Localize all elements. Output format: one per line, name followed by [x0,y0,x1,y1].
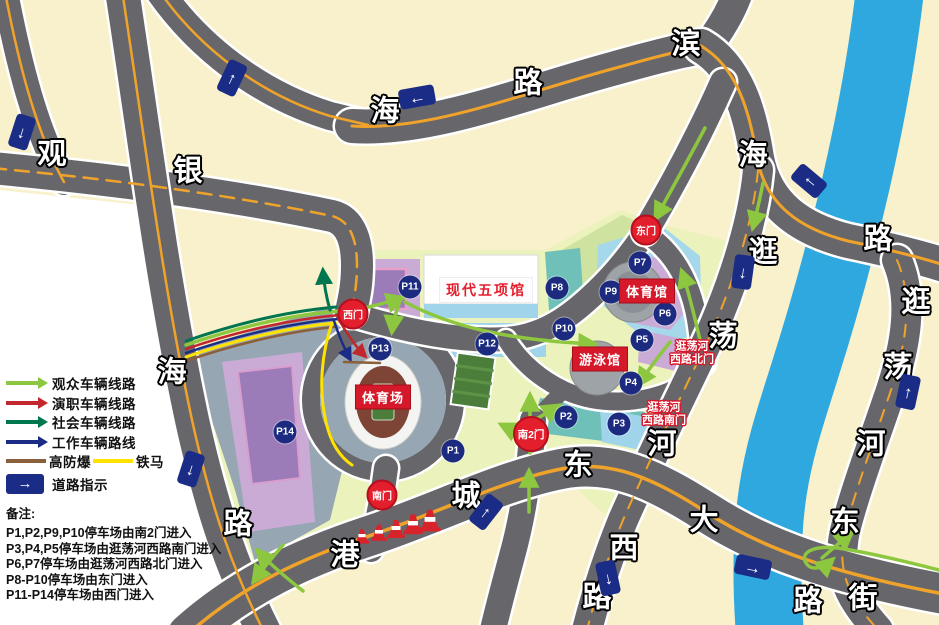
road-name-char: 东 [830,509,859,538]
legend-route-row: 工作车辆路线 [6,433,230,452]
venue-label: 游泳馆 [572,347,628,372]
parking-marker: P8 [546,277,569,300]
legend-sign-label: 道路指示 [52,474,108,494]
route-arrow-swatch [6,377,52,389]
legend-barrier-label: 高防爆 [49,451,91,471]
route-arrow-swatch [6,416,52,428]
arrow-icon: → [18,475,33,492]
road-name-char: 海 [370,98,399,127]
legend-barrier-row: 高防爆 铁马 [6,452,230,471]
legend-barrier-item: 铁马 [93,451,164,471]
arrow-head-icon [38,436,48,448]
venue-label: 体育场 [355,385,411,410]
road-name-char: 大 [689,507,718,536]
arrow-icon: ↑ [225,69,240,88]
legend-notes-title: 备注: [6,503,230,522]
parking-marker: P10 [553,318,576,341]
road-name-char: 海 [738,142,767,171]
road-sign-sample: → [6,474,44,494]
parking-marker: P7 [629,252,652,275]
legend-note-line: P6,P7停车场由逛荡河西路北门进入 [6,557,230,573]
traffic-map: 观银海路滨海路海路港城东大西路逛荡河逛荡河东街路 ↓↑←↑↓↑↓↑↓→ P1P2… [0,0,939,625]
road-name-char: 西 [609,535,638,564]
legend-route-row: 演职车辆线路 [6,394,230,413]
parking-marker: P12 [476,333,499,356]
road-name-char: 东 [563,452,592,481]
legend-route-label: 社会车辆线路 [52,412,136,432]
arrow-icon: ← [407,87,427,107]
parking-marker: P1 [442,440,465,463]
parking-marker: P13 [369,338,392,361]
parking-marker: P6 [654,303,677,326]
arrow-icon: ↓ [15,123,28,142]
gate-marker: 西门 [338,299,369,330]
road-name-char: 滨 [671,31,700,60]
parking-marker: P11 [399,276,422,299]
legend-barrier-label: 铁马 [136,451,164,471]
parking-marker: P14 [274,421,297,444]
road-name-char: 观 [37,141,66,170]
road-name-char: 街 [848,585,877,614]
arrow-icon: ↑ [800,172,818,189]
road-name-char: 河 [856,431,885,460]
gate-entry-label: 逛荡河西路北门 [670,341,714,366]
road-name-char: 港 [330,542,359,571]
legend-notes: P1,P2,P9,P10停车场由南2门进入P3,P4,P5停车场由逛荡河西路南门… [6,526,230,604]
arrow-icon: ↓ [738,263,749,281]
legend-sign-row: → 道路指示 [6,475,230,494]
arrow-head-icon [38,377,48,389]
gate-marker: 南门 [367,480,398,511]
arrow-icon: ↑ [477,503,494,522]
legend: 观众车辆线路 演职车辆线路 社会车辆线路 工作车辆路线 [6,374,230,604]
legend-route-label: 观众车辆线路 [52,373,136,393]
legend-route-row: 观众车辆线路 [6,374,230,393]
arrow-head-icon [38,416,48,428]
arrow-icon: → [743,557,763,577]
legend-note-line: P8-P10停车场由东门进入 [6,573,230,589]
legend-barrier-item: 高防爆 [6,451,91,471]
road-name-char: 路 [863,226,892,255]
legend-note-line: P11-P14停车场由西门进入 [6,588,230,604]
road-name-char: 河 [647,431,676,460]
road-name-char: 逛 [901,289,930,318]
legend-note-line: P1,P2,P9,P10停车场由南2门进入 [6,526,230,542]
road-name-char: 路 [793,588,822,617]
road-name-char: 路 [513,70,542,99]
legend-route-row: 社会车辆线路 [6,413,230,432]
parking-marker: P3 [608,413,631,436]
barrier-gaofangbao [344,362,380,363]
legend-route-rows: 观众车辆线路 演职车辆线路 社会车辆线路 工作车辆路线 [6,374,230,451]
gate-entry-label: 逛荡河西路南门 [642,402,686,427]
parking-marker: P5 [631,329,654,352]
legend-route-label: 演职车辆线路 [52,393,136,413]
road-name-char: 银 [173,158,202,187]
venue-label: 体育馆 [619,279,675,304]
route-arrow-swatch [6,436,52,448]
arrow-head-icon [38,397,48,409]
parking-marker: P4 [620,372,643,395]
venue-label: 现代五项馆 [439,277,533,303]
soccer-field [451,353,496,410]
arrow-icon: ↓ [602,569,614,587]
parking-marker: P2 [555,406,578,429]
gate-marker: 南2门 [513,416,549,452]
arrow-icon: ↑ [902,383,914,401]
barrier-line-swatch [93,459,133,463]
legend-note-line: P3,P4,P5停车场由逛荡河西路南门进入 [6,542,230,558]
gate-marker: 东门 [631,215,662,246]
barrier-line-swatch [6,459,46,463]
legend-route-label: 工作车辆路线 [52,432,136,452]
route-arrow-swatch [6,397,52,409]
